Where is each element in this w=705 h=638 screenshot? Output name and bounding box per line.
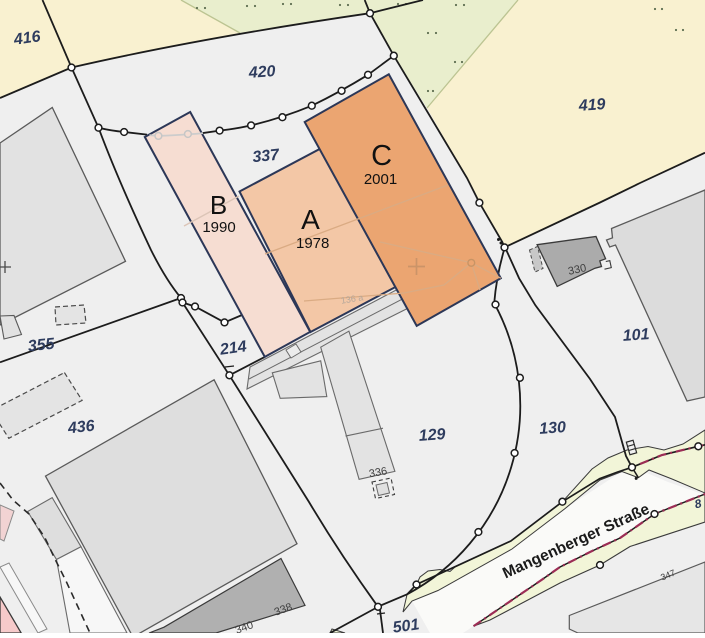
svg-text:419: 419 <box>577 96 606 115</box>
svg-text:130: 130 <box>539 419 567 438</box>
svg-text:B: B <box>210 190 227 220</box>
svg-text:1978: 1978 <box>296 235 329 252</box>
svg-text:337: 337 <box>252 146 281 166</box>
svg-text:101: 101 <box>622 326 650 345</box>
svg-text:436: 436 <box>66 418 95 438</box>
svg-text:420: 420 <box>247 63 276 82</box>
svg-text:501: 501 <box>392 616 421 633</box>
svg-text:355: 355 <box>27 336 56 356</box>
svg-text:C: C <box>371 140 392 172</box>
svg-text:1990: 1990 <box>202 219 235 236</box>
svg-text:A: A <box>301 204 320 235</box>
svg-text:129: 129 <box>418 426 446 445</box>
svg-text:2001: 2001 <box>364 171 397 188</box>
